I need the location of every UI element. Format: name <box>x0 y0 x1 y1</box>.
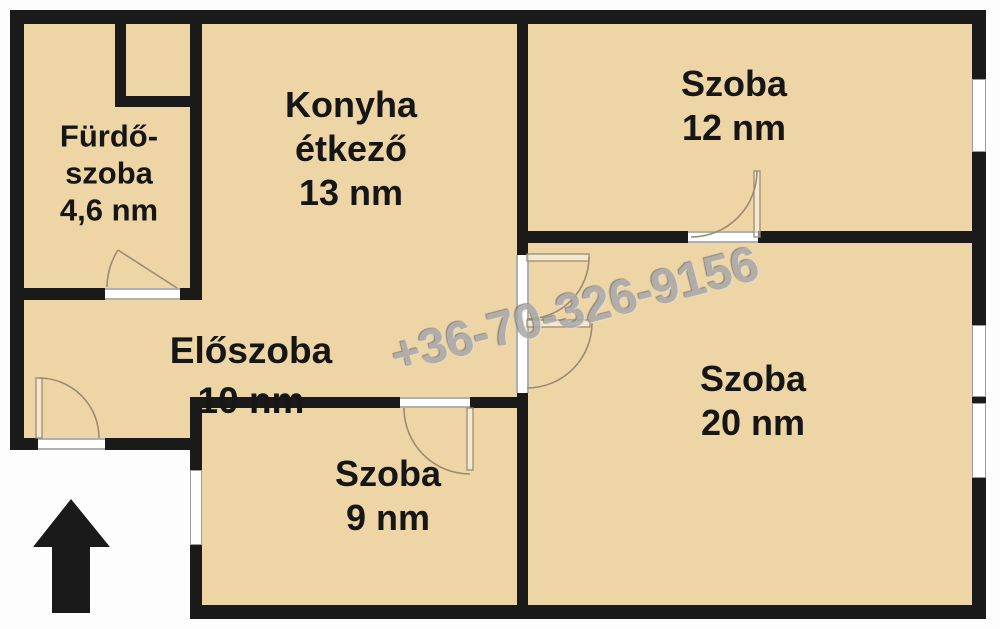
floor-plan: Fürdő- szoba 4,6 nm Konyha étkező 13 nm … <box>0 0 1000 629</box>
room-label-eloszoba: Előszoba 10 nm <box>170 326 332 426</box>
double-door-upper-leaf <box>527 254 589 261</box>
room-label-konyha: Konyha étkező 13 nm <box>285 83 417 215</box>
entrance-door-leaf <box>36 378 42 438</box>
bathroom-door <box>107 250 177 288</box>
room-name-line: Szoba <box>681 62 787 106</box>
room-label-szoba12: Szoba 12 nm <box>681 62 787 150</box>
room-area-line: 12 nm <box>681 106 787 150</box>
entrance-arrow-icon <box>33 499 110 613</box>
room-name-line: Konyha <box>285 83 417 127</box>
room-label-furdoszoba: Fürdő- szoba 4,6 nm <box>60 118 158 229</box>
bathroom-door-leaf <box>118 250 177 288</box>
entrance-door-arc <box>39 378 99 438</box>
room-area-line: 10 nm <box>170 376 332 426</box>
room-area-line: 4,6 nm <box>60 192 158 229</box>
room-label-szoba9: Szoba 9 nm <box>335 452 441 540</box>
room-name-line: Előszoba <box>170 326 332 376</box>
room-name-line: Fürdő- <box>60 118 158 155</box>
room-name-line: Szoba <box>335 452 441 496</box>
szoba12-door <box>691 171 760 237</box>
room-name-line: szoba <box>60 155 158 192</box>
bathroom-door-arc <box>107 250 118 287</box>
room-name-line: Szoba <box>700 357 806 401</box>
room-area-line: 9 nm <box>335 496 441 540</box>
entrance-door <box>36 378 99 438</box>
szoba12-door-arc <box>691 171 757 237</box>
szoba9-door-leaf <box>467 408 473 470</box>
room-label-szoba20: Szoba 20 nm <box>700 357 806 445</box>
room-area-line: 13 nm <box>285 171 417 215</box>
room-name-line: étkező <box>285 127 417 171</box>
room-area-line: 20 nm <box>700 401 806 445</box>
